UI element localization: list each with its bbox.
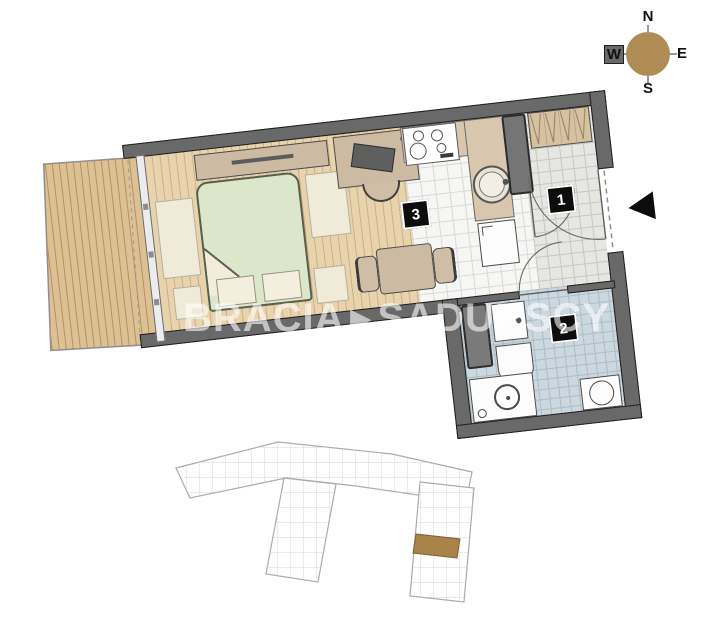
compass-label-east: E (672, 45, 692, 62)
room-label-living: 3 (400, 199, 431, 230)
page-root: { "compass": { "north": "N", "south": "S… (0, 0, 712, 640)
minimap-wing-center (266, 478, 336, 582)
compass-label-west: W (604, 45, 624, 64)
entrance-arrow-icon (627, 191, 656, 222)
watermark-arrow-icon: ▶ (351, 303, 372, 333)
room-label-hall: 1 (546, 184, 577, 215)
compass-tick-north (647, 25, 649, 32)
building-minimap (160, 432, 496, 604)
compass-circle-icon (626, 32, 670, 76)
watermark-brand-left: BRACIA (183, 296, 345, 340)
watermark: BRACIA▶SADURSCY (183, 296, 610, 341)
bathroom-door-leaf (520, 290, 568, 295)
watermark-brand-right: SADURSCY (378, 296, 610, 340)
compass-label-north: N (638, 8, 658, 25)
bathroom-door-arc (514, 242, 567, 295)
